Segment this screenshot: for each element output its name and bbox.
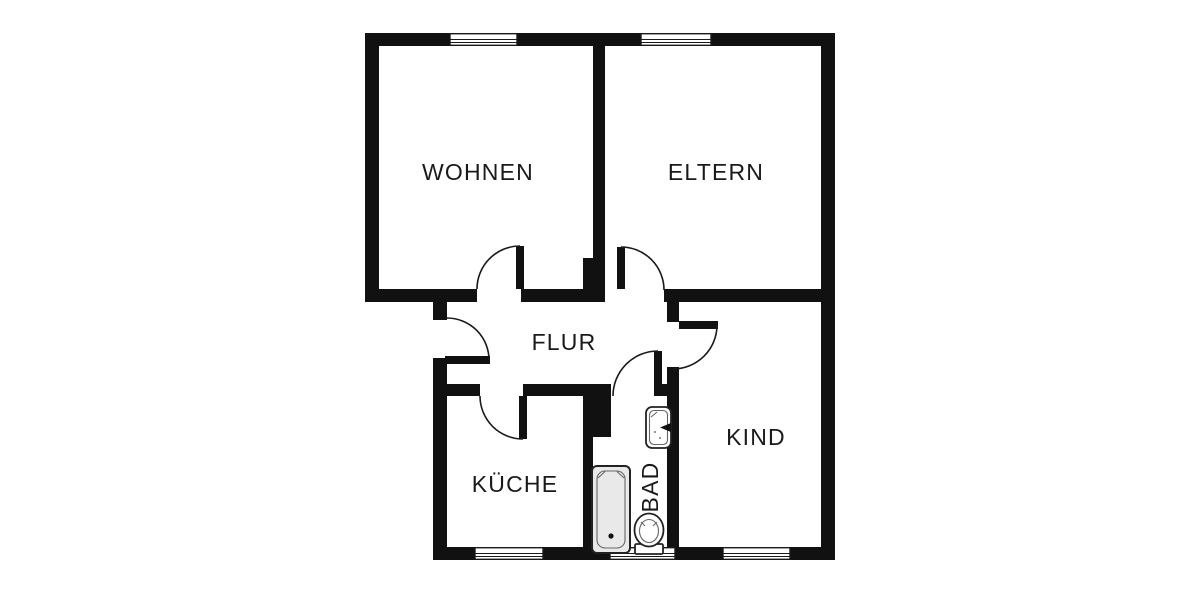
wall-segment	[583, 384, 611, 437]
wall-segment	[667, 302, 679, 322]
sink-icon	[646, 407, 671, 448]
toilet-icon	[635, 514, 664, 555]
door-eltern	[617, 247, 664, 290]
door-leaf	[679, 321, 718, 329]
door-kueche	[480, 396, 527, 439]
wall-segment	[593, 46, 605, 289]
wall-segment	[523, 384, 583, 396]
wall-segment	[517, 33, 641, 46]
door-leaf	[516, 246, 524, 289]
wall-segment	[433, 358, 447, 547]
door-bad	[613, 351, 662, 396]
door-wohnen	[477, 246, 524, 289]
window-eltern	[641, 34, 711, 46]
room-label-wohnen: WOHNEN	[422, 159, 534, 185]
door-leaf	[445, 356, 490, 364]
wall-segment	[790, 547, 835, 560]
window-wohnen	[450, 34, 517, 46]
wall-segment	[664, 289, 835, 302]
floor-plan-canvas: WOHNEN ELTERN FLUR KÜCHE BAD KIND	[0, 0, 1200, 600]
window-kind	[723, 548, 790, 560]
wall-segment	[711, 33, 835, 46]
door-leaf	[654, 351, 662, 396]
bathtub-icon	[592, 466, 630, 553]
door-swing-arc	[477, 246, 520, 289]
wall-segment	[365, 33, 379, 302]
room-label-kueche: KÜCHE	[472, 471, 559, 497]
wall-segment	[433, 547, 475, 560]
door-kind	[673, 321, 718, 369]
floor-plan: WOHNEN ELTERN FLUR KÜCHE BAD KIND	[0, 0, 1200, 600]
room-label-eltern: ELTERN	[668, 159, 764, 185]
door-entrance	[445, 318, 490, 364]
door-leaf	[519, 396, 527, 439]
room-label-flur: FLUR	[532, 329, 597, 355]
door-leaf	[617, 247, 625, 289]
wall-segment	[447, 384, 480, 396]
wall-segment	[433, 302, 447, 320]
door-swing-arc	[621, 247, 664, 290]
door-swing-arc	[447, 318, 489, 360]
wall-segment	[667, 367, 679, 547]
room-label-kind: KIND	[726, 424, 786, 450]
door-swing-arc	[480, 396, 523, 439]
wall-segment	[365, 289, 477, 302]
door-swing-arc	[673, 325, 717, 369]
door-swing-arc	[613, 351, 658, 396]
room-label-bad: BAD	[637, 462, 663, 513]
window-kueche	[475, 548, 543, 560]
wall-segment	[675, 547, 723, 560]
